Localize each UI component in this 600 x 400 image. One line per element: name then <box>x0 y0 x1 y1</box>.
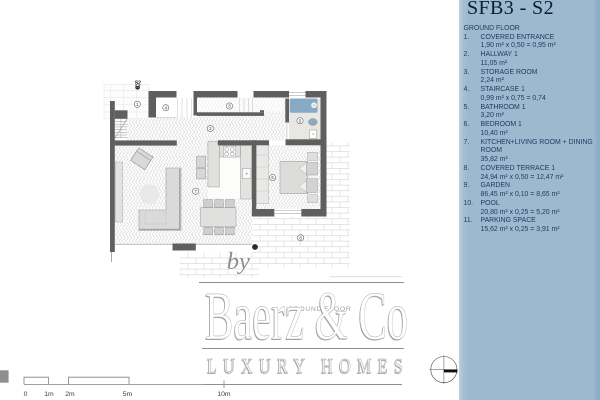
svg-text:10m: 10m <box>217 391 231 398</box>
svg-text:0: 0 <box>24 391 28 398</box>
svg-text:5m: 5m <box>123 391 133 398</box>
svg-text:1m: 1m <box>44 391 54 398</box>
svg-text:2m: 2m <box>65 391 75 398</box>
